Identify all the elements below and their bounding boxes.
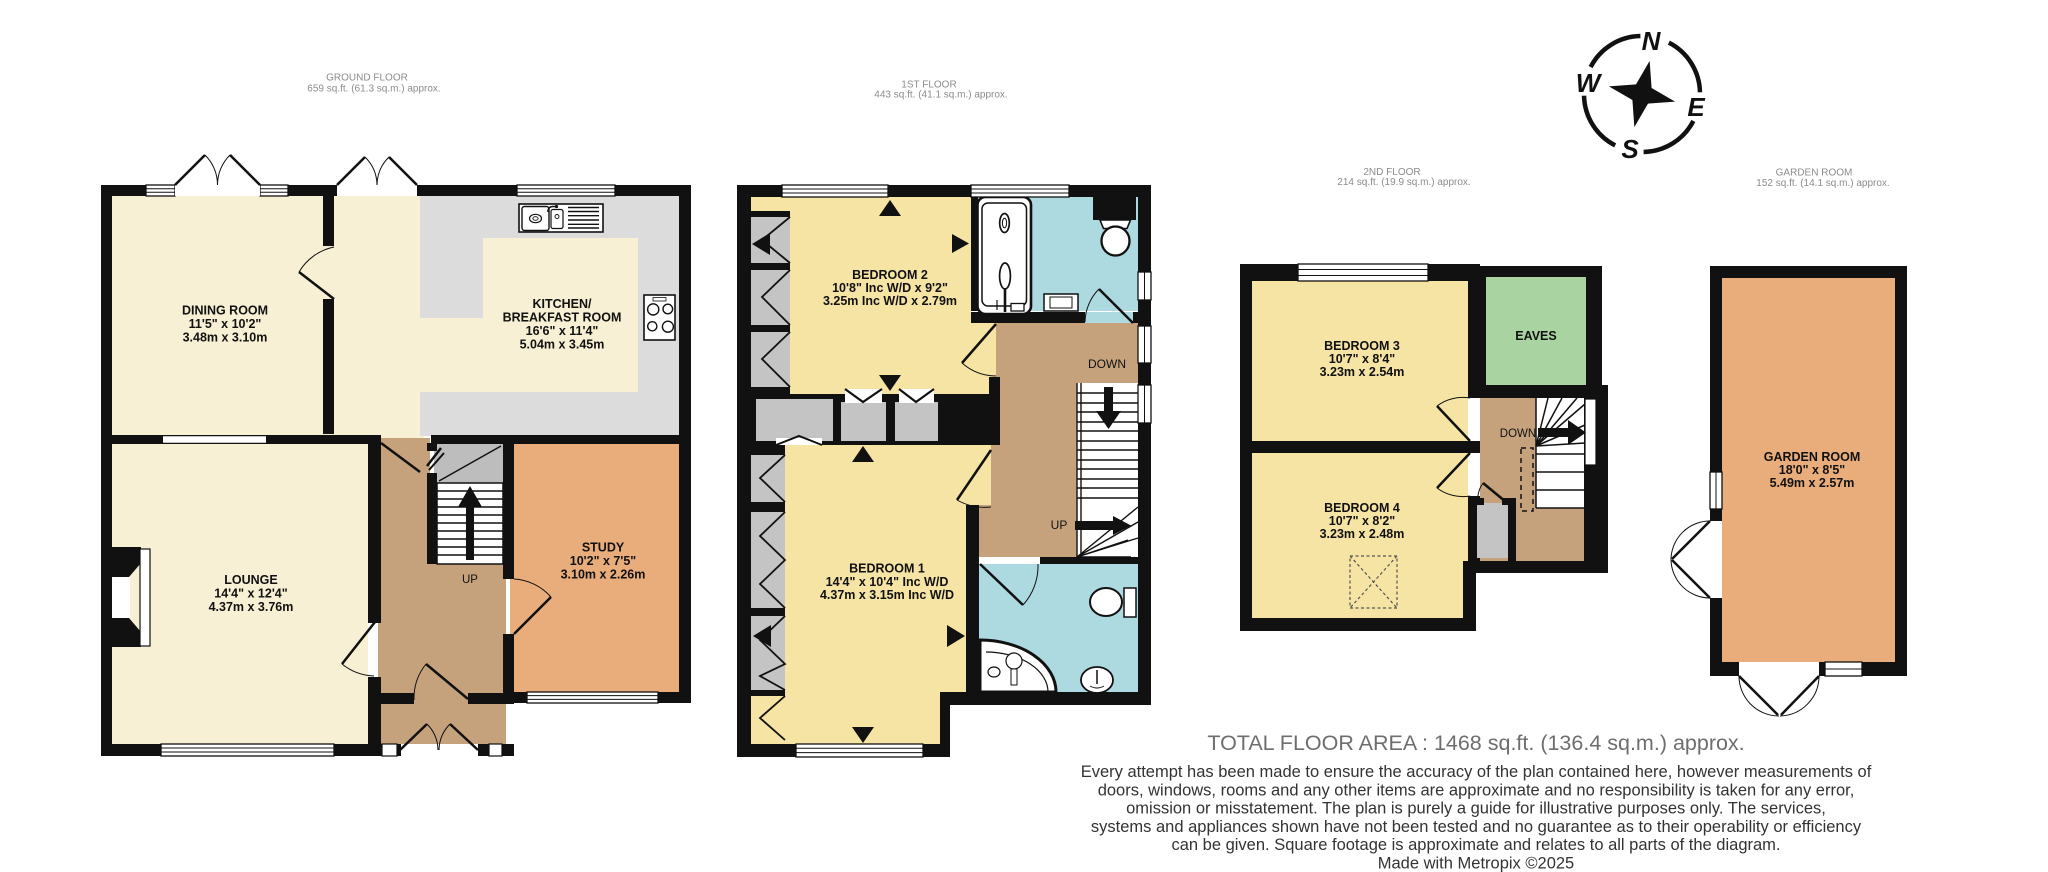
svg-text:3.25m Inc W/D x 2.79m: 3.25m Inc W/D x 2.79m xyxy=(823,294,957,308)
svg-text:443 sq.ft. (41.1 sq.m.) approx: 443 sq.ft. (41.1 sq.m.) approx. xyxy=(874,90,1007,101)
svg-text:BEDROOM 3: BEDROOM 3 xyxy=(1324,339,1400,353)
svg-text:S: S xyxy=(1621,134,1639,164)
svg-text:TOTAL FLOOR AREA : 1468 sq.ft.: TOTAL FLOOR AREA : 1468 sq.ft. (136.4 sq… xyxy=(1207,731,1744,755)
svg-text:3.10m x 2.26m: 3.10m x 2.26m xyxy=(561,568,646,582)
svg-text:GROUND FLOOR: GROUND FLOOR xyxy=(326,73,408,84)
svg-text:10'8" Inc W/D x 9'2": 10'8" Inc W/D x 9'2" xyxy=(832,281,948,295)
svg-text:10'7" x 8'2": 10'7" x 8'2" xyxy=(1329,514,1396,528)
svg-text:11'5" x 10'2": 11'5" x 10'2" xyxy=(189,317,262,331)
svg-text:5.49m x 2.57m: 5.49m x 2.57m xyxy=(1770,476,1855,490)
svg-text:152 sq.ft. (14.1 sq.m.) approx: 152 sq.ft. (14.1 sq.m.) approx. xyxy=(1756,178,1889,189)
svg-text:UP: UP xyxy=(1051,518,1068,532)
svg-text:Made with Metropix ©2025: Made with Metropix ©2025 xyxy=(1378,855,1575,872)
svg-text:E: E xyxy=(1687,92,1705,122)
svg-text:DOWN: DOWN xyxy=(1500,428,1536,440)
svg-text:BEDROOM 2: BEDROOM 2 xyxy=(852,268,928,282)
svg-text:BEDROOM 1: BEDROOM 1 xyxy=(849,562,925,576)
svg-text:659 sq.ft. (61.3 sq.m.) approx: 659 sq.ft. (61.3 sq.m.) approx. xyxy=(307,84,440,95)
svg-text:5.04m x 3.45m: 5.04m x 3.45m xyxy=(520,338,605,352)
svg-text:3.23m x 2.48m: 3.23m x 2.48m xyxy=(1320,527,1405,541)
svg-text:W: W xyxy=(1576,68,1603,98)
svg-text:DOWN: DOWN xyxy=(1088,357,1126,371)
svg-text:GARDEN ROOM: GARDEN ROOM xyxy=(1764,450,1861,464)
svg-text:14'4" x 10'4" Inc W/D: 14'4" x 10'4" Inc W/D xyxy=(826,575,949,589)
svg-text:systems and appliances shown h: systems and appliances shown have not be… xyxy=(1091,818,1862,836)
svg-text:18'0" x 8'5": 18'0" x 8'5" xyxy=(1779,463,1846,477)
svg-text:STUDY: STUDY xyxy=(582,541,625,555)
svg-text:214 sq.ft. (19.9 sq.m.) approx: 214 sq.ft. (19.9 sq.m.) approx. xyxy=(1337,177,1470,188)
svg-text:16'6" x 11'4": 16'6" x 11'4" xyxy=(526,324,599,338)
svg-text:BEDROOM 4: BEDROOM 4 xyxy=(1324,501,1400,515)
svg-text:Every attempt has been made to: Every attempt has been made to ensure th… xyxy=(1081,763,1872,781)
svg-text:doors, windows, rooms and any: doors, windows, rooms and any other item… xyxy=(1098,781,1855,799)
svg-text:LOUNGE: LOUNGE xyxy=(224,573,277,587)
svg-text:EAVES: EAVES xyxy=(1515,329,1556,343)
svg-text:GARDEN ROOM: GARDEN ROOM xyxy=(1776,168,1853,179)
svg-text:4.37m x 3.76m: 4.37m x 3.76m xyxy=(209,600,294,614)
svg-text:UP: UP xyxy=(462,574,478,586)
svg-text:10'7" x 8'4": 10'7" x 8'4" xyxy=(1329,352,1396,366)
svg-text:can be given. Square footage i: can be given. Square footage is approxim… xyxy=(1171,836,1780,854)
svg-text:4.37m x 3.15m Inc W/D: 4.37m x 3.15m Inc W/D xyxy=(820,588,954,602)
svg-text:DINING ROOM: DINING ROOM xyxy=(182,304,268,318)
svg-text:10'2" x 7'5": 10'2" x 7'5" xyxy=(570,554,637,568)
svg-text:BREAKFAST ROOM: BREAKFAST ROOM xyxy=(503,311,622,325)
svg-text:3.23m x 2.54m: 3.23m x 2.54m xyxy=(1320,365,1405,379)
svg-text:14'4" x 12'4": 14'4" x 12'4" xyxy=(214,587,287,601)
svg-text:omission or misstatement. The: omission or misstatement. The plan is pu… xyxy=(1126,800,1826,818)
svg-text:3.48m x 3.10m: 3.48m x 3.10m xyxy=(183,331,268,345)
svg-text:N: N xyxy=(1642,26,1662,56)
svg-text:KITCHEN/: KITCHEN/ xyxy=(532,297,592,311)
